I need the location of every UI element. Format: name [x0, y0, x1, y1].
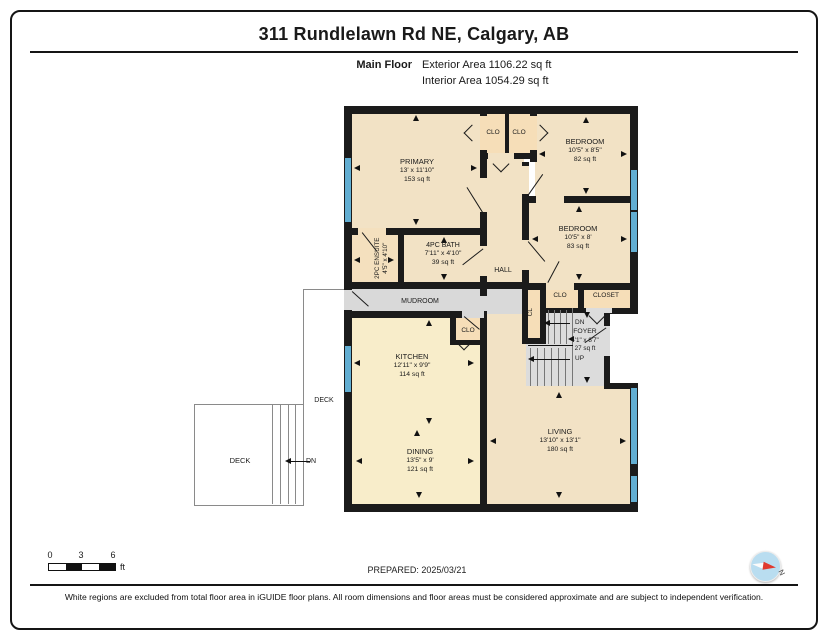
- stair-tread: [551, 348, 552, 386]
- room-name: FOYER: [550, 328, 620, 337]
- dim-arrow: [413, 115, 419, 121]
- dim-arrow: [620, 438, 626, 444]
- page-title: 311 Rundlelawn Rd NE, Calgary, AB: [0, 24, 828, 45]
- room-label-deck-left: DECK: [200, 456, 280, 466]
- stair-tread: [530, 348, 531, 386]
- room-dims: 13'10" x 13'1": [500, 437, 620, 446]
- room-dims: 13'5" x 9': [360, 457, 480, 466]
- wall: [344, 106, 638, 114]
- stairs-dn-label: DN: [575, 319, 595, 327]
- room-label-clo-b: CLO: [506, 129, 532, 137]
- dim-arrow: [583, 188, 589, 194]
- room-name: BEDROOM: [528, 224, 628, 234]
- room-dims: 13' x 11'10": [357, 167, 477, 176]
- room-dims: 4'1" x 8'7": [550, 337, 620, 345]
- dim-arrow: [576, 274, 582, 280]
- window: [345, 346, 351, 392]
- compass-needle: [752, 560, 779, 573]
- window: [631, 170, 637, 210]
- room-dims: 10'5" x 8': [528, 234, 628, 243]
- door-gap: [480, 178, 487, 212]
- stairs-up-label: UP: [575, 355, 595, 363]
- stair-tread: [565, 348, 566, 386]
- room-area: 114 sq ft: [352, 371, 472, 380]
- scale-tick-3: 3: [75, 550, 87, 560]
- stair-tread: [558, 348, 559, 386]
- floor-label: Main Floor: [280, 59, 412, 71]
- footer-divider: [30, 584, 798, 586]
- room-dims: 12'11" x 9'9": [352, 362, 472, 371]
- scale-tick-0: 0: [44, 550, 56, 560]
- scale-unit-label: ft: [120, 562, 132, 572]
- stair-tread: [537, 348, 538, 386]
- dim-arrow: [583, 117, 589, 123]
- room-label-closet: CLOSET: [581, 292, 631, 300]
- room-name: PRIMARY: [357, 157, 477, 167]
- deck-dn-arrow-head: [285, 458, 291, 464]
- floorplan-page: 311 Rundlelawn Rd NE, Calgary, AB Main F…: [0, 0, 828, 640]
- deck-step-line: [288, 405, 289, 504]
- room-label-primary: PRIMARY 13' x 11'10" 153 sq ft: [357, 157, 477, 184]
- room-name: LIVING: [500, 427, 620, 437]
- stairs-up-arrow-head: [528, 356, 534, 362]
- scale-segment: [99, 564, 116, 570]
- room-dims: 4'5" x 4'10": [382, 223, 390, 293]
- dim-arrow: [414, 430, 420, 436]
- room-name: KITCHEN: [352, 352, 472, 362]
- room-label-bedroom-a: BEDROOM 10'5" x 8'5" 82 sq ft: [535, 137, 635, 164]
- room-area: 39 sq ft: [393, 259, 493, 268]
- room-label-deck-strip: DECK: [304, 396, 344, 405]
- deck-dn-label: DN: [306, 457, 330, 466]
- dim-arrow: [576, 206, 582, 212]
- dim-arrow: [556, 392, 562, 398]
- room-label-bath: 4PC BATH 7'11" x 4'10" 39 sq ft: [393, 241, 493, 268]
- dim-arrow: [426, 418, 432, 424]
- room-name: BEDROOM: [535, 137, 635, 147]
- scale-tick-6: 6: [107, 550, 119, 560]
- room-area: 153 sq ft: [357, 176, 477, 185]
- room-name: 4PC BATH: [393, 241, 493, 250]
- scale-bar: [48, 563, 116, 571]
- stairs-dn-arrow-line: [548, 323, 570, 324]
- scale-segment: [66, 564, 83, 570]
- prepared-date-label: PREPARED: 2025/03/21: [300, 565, 534, 575]
- dim-arrow: [354, 257, 360, 263]
- room-area: 121 sq ft: [360, 466, 480, 475]
- room-dims: 7'11" x 4'10": [393, 250, 493, 259]
- room-name: DINING: [360, 447, 480, 457]
- window: [631, 476, 637, 502]
- room-label-kitchen: KITCHEN 12'11" x 9'9" 114 sq ft: [352, 352, 472, 379]
- room-label-hall: HALL: [483, 266, 523, 275]
- door-gap: [546, 283, 574, 290]
- scale-segment: [82, 564, 99, 570]
- stairs-up-arrow-line: [532, 359, 570, 360]
- deck-strip-top-edge: [303, 289, 344, 290]
- window: [631, 388, 637, 464]
- door-gap: [536, 196, 564, 203]
- interior-area-label: Interior Area 1054.29 sq ft: [422, 75, 549, 87]
- room-area: 27 sq ft: [550, 345, 620, 353]
- wall: [344, 282, 525, 289]
- window: [345, 158, 351, 222]
- stairs-dn-arrow-head: [544, 320, 550, 326]
- stair-tread: [548, 310, 549, 344]
- dim-arrow: [426, 320, 432, 326]
- room-area: 82 sq ft: [535, 156, 635, 165]
- scale-segment: [49, 564, 66, 570]
- exterior-area-label: Exterior Area 1106.22 sq ft: [422, 59, 551, 71]
- dim-arrow: [584, 312, 590, 318]
- room-name: 2PC ENSUITE: [374, 223, 382, 293]
- deck-step-line: [272, 405, 273, 504]
- door-gap: [344, 290, 352, 310]
- room-label-clo-bed: CLO: [540, 292, 580, 300]
- deck-step-line: [280, 405, 281, 504]
- room-label-mudroom: MUDROOM: [370, 297, 470, 306]
- door-gap: [522, 166, 529, 194]
- footer-disclaimer: White regions are excluded from total fl…: [0, 592, 828, 602]
- title-divider: [30, 51, 798, 53]
- dim-arrow: [441, 274, 447, 280]
- room-area: 83 sq ft: [528, 243, 628, 252]
- room-label-bedroom-b: BEDROOM 10'5" x 8' 83 sq ft: [528, 224, 628, 251]
- room-label-dining: DINING 13'5" x 9' 121 sq ft: [360, 447, 480, 474]
- room-area: 180 sq ft: [500, 446, 620, 455]
- room-label-cl: CL: [527, 302, 535, 322]
- dim-arrow: [584, 377, 590, 383]
- dim-arrow: [556, 492, 562, 498]
- compass-icon: [750, 551, 781, 582]
- room-label-clo-kitchen: CLO: [448, 327, 488, 335]
- dim-arrow: [490, 438, 496, 444]
- compass-needle-tip: [763, 562, 777, 572]
- room-label-clo-a: CLO: [480, 129, 506, 137]
- wall: [522, 338, 546, 344]
- deck-step-line: [295, 405, 296, 504]
- dim-arrow: [413, 219, 419, 225]
- room-label-ensuite: 2PC ENSUITE 4'5" x 4'10": [374, 223, 390, 293]
- stair-tread: [544, 348, 545, 386]
- wall: [344, 504, 638, 512]
- room-label-foyer: FOYER 4'1" x 8'7" 27 sq ft: [550, 328, 620, 353]
- room-label-living: LIVING 13'10" x 13'1" 180 sq ft: [500, 427, 620, 454]
- window: [631, 212, 637, 252]
- dim-arrow: [416, 492, 422, 498]
- room-dims: 10'5" x 8'5": [535, 147, 635, 156]
